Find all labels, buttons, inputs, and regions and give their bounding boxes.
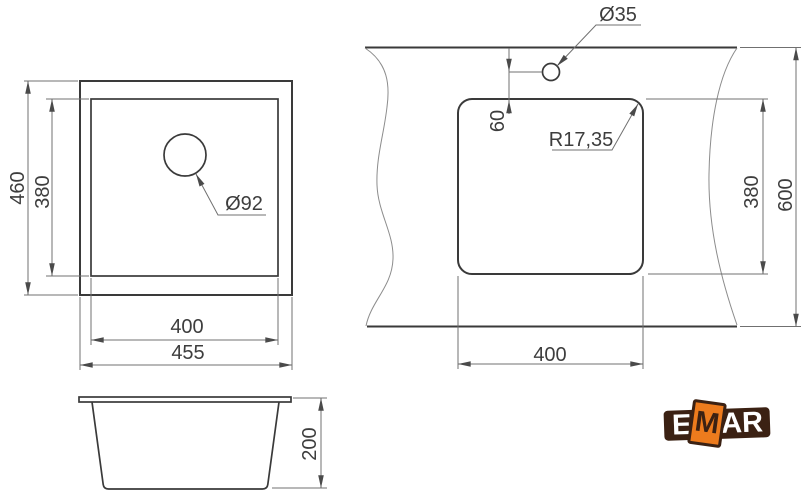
faucet-hole-circle bbox=[543, 64, 560, 81]
emar-logo: E AR M bbox=[658, 398, 778, 452]
sink-outer-rect bbox=[80, 81, 292, 295]
cutout-rounded-rect bbox=[458, 99, 643, 274]
logo-letter-m: M bbox=[693, 407, 721, 439]
sink-technical-drawing: 460 380 400 455 Ø92 200 Ø35 60 R17,35 38… bbox=[0, 0, 804, 491]
top-view-dimensions bbox=[24, 81, 292, 370]
faucet-hole-leader bbox=[557, 25, 641, 66]
dim-label-outer-height: 460 bbox=[8, 171, 28, 204]
dim-label-outer-width: 455 bbox=[171, 343, 204, 363]
logo-letters-ar: AR bbox=[721, 407, 764, 438]
dim-label-cutout-height: 380 bbox=[742, 175, 762, 208]
worktop-right-break-line bbox=[709, 48, 737, 325]
side-view-linework bbox=[79, 397, 291, 489]
dim-label-faucet-hole: Ø35 bbox=[599, 5, 637, 25]
emar-logo-tile: M bbox=[687, 399, 727, 448]
dim-label-bowl-height: 380 bbox=[33, 175, 53, 208]
worktop-left-break-line bbox=[365, 48, 393, 326]
dim-label-worktop-depth: 600 bbox=[776, 178, 796, 211]
dim-label-corner-radius: R17,35 bbox=[549, 130, 614, 150]
dim-label-depth: 200 bbox=[300, 427, 320, 460]
dim-label-hole-offset: 60 bbox=[488, 110, 508, 132]
cutout-view-linework bbox=[365, 25, 737, 327]
sink-body-trapezoid bbox=[92, 402, 279, 489]
drain-hole-circle bbox=[164, 134, 206, 176]
dim-label-bowl-width: 400 bbox=[170, 317, 203, 337]
dim-label-cutout-width: 400 bbox=[533, 345, 566, 365]
sink-rim-bar bbox=[79, 397, 291, 402]
dim-label-drain-diameter: Ø92 bbox=[225, 194, 263, 214]
sink-bowl-rect bbox=[91, 99, 278, 276]
top-view-linework bbox=[80, 81, 292, 295]
